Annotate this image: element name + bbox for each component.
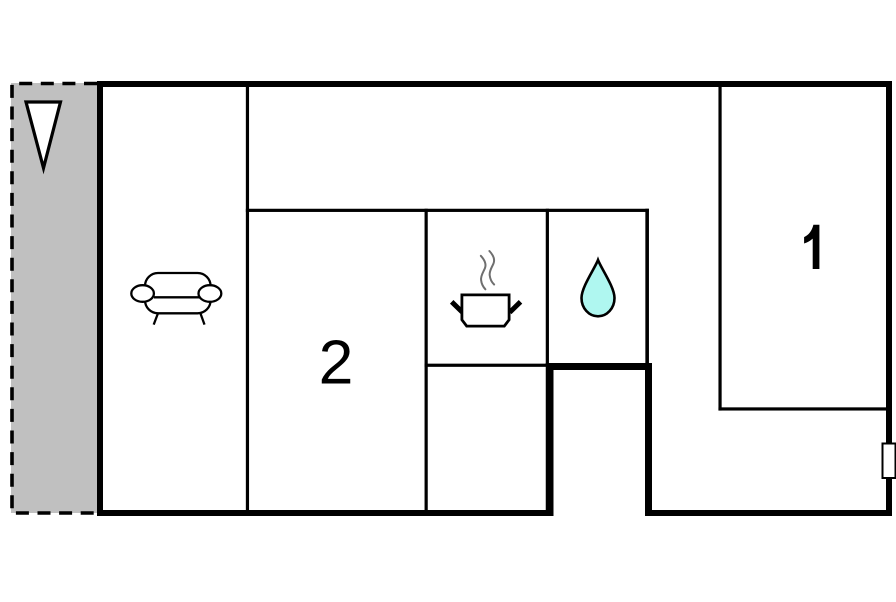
svg-text:2: 2 (319, 328, 354, 398)
